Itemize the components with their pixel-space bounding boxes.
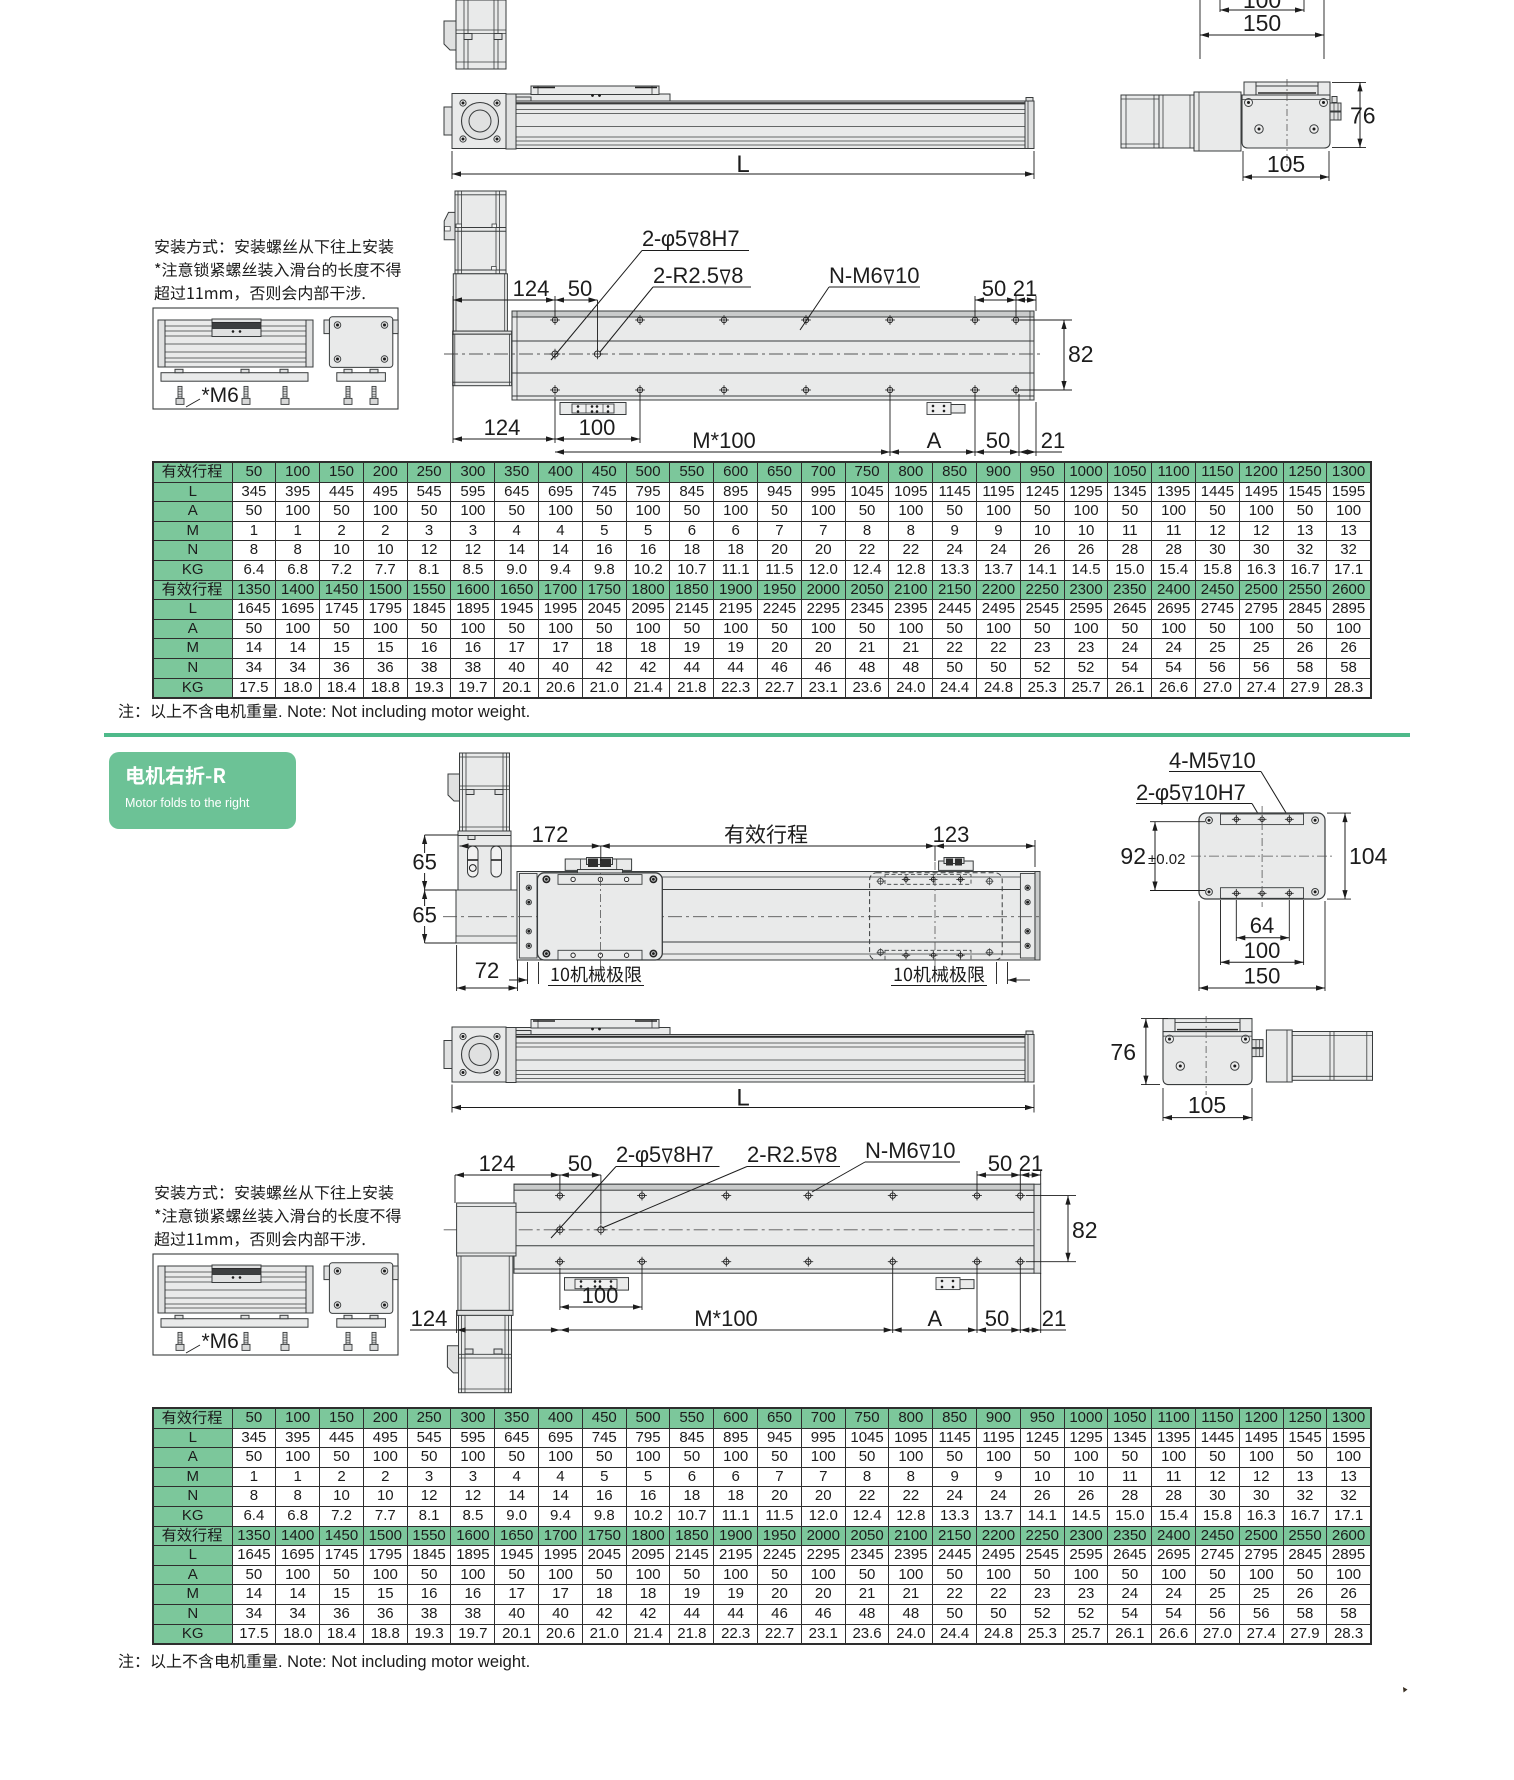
svg-text:124: 124	[479, 1151, 516, 1176]
svg-text:65: 65	[412, 903, 436, 928]
svg-text:105: 105	[1188, 1092, 1226, 1118]
svg-text:50: 50	[568, 276, 592, 301]
svg-text:. Note: Not including motor we: . Note: Not including motor weight.	[278, 1653, 530, 1671]
svg-text:50: 50	[986, 428, 1010, 453]
svg-text:82: 82	[1068, 341, 1094, 367]
svg-text:M*100: M*100	[692, 428, 756, 453]
svg-text:*M6: *M6	[202, 384, 239, 407]
svg-text:92: 92	[1120, 843, 1146, 869]
svg-text:50: 50	[568, 1151, 592, 1176]
svg-text:123: 123	[933, 822, 970, 847]
svg-text:100: 100	[579, 415, 616, 440]
svg-text:21: 21	[1019, 1151, 1043, 1176]
svg-text:8: 8	[825, 1142, 837, 1167]
svg-text:82: 82	[1072, 1217, 1098, 1243]
svg-text:4-M5: 4-M5	[1169, 748, 1219, 773]
svg-text:10: 10	[895, 263, 920, 288]
svg-text:100: 100	[1244, 938, 1281, 963]
svg-text:8H7: 8H7	[673, 1142, 713, 1167]
svg-text:104: 104	[1349, 843, 1388, 869]
svg-text:10H7: 10H7	[1193, 780, 1246, 805]
svg-text:150: 150	[1243, 10, 1281, 36]
svg-text:50: 50	[982, 276, 1006, 301]
svg-text:64: 64	[1250, 913, 1274, 938]
svg-text:124: 124	[411, 1306, 448, 1331]
svg-text:. Note: Not including motor we: . Note: Not including motor weight.	[278, 703, 530, 721]
svg-text:8: 8	[731, 263, 743, 288]
svg-text:124: 124	[484, 415, 521, 440]
svg-text:50: 50	[985, 1306, 1009, 1331]
svg-text:2-φ5: 2-φ5	[616, 1142, 661, 1167]
svg-text:M*100: M*100	[694, 1306, 758, 1331]
svg-text:8H7: 8H7	[699, 226, 739, 251]
svg-text:2-R2.5: 2-R2.5	[747, 1142, 813, 1167]
svg-text:100: 100	[1243, 0, 1281, 13]
svg-text:2-φ5: 2-φ5	[1136, 780, 1181, 805]
svg-text:72: 72	[475, 958, 499, 983]
svg-text:L: L	[736, 151, 749, 178]
svg-text:A: A	[927, 428, 942, 453]
svg-text:172: 172	[532, 822, 569, 847]
svg-text:*M6: *M6	[202, 1330, 239, 1353]
svg-text:76: 76	[1350, 103, 1376, 129]
svg-text:±0.02: ±0.02	[1148, 851, 1185, 868]
svg-text:N-M6: N-M6	[829, 263, 883, 288]
svg-text:A: A	[927, 1306, 942, 1331]
svg-text:124: 124	[513, 276, 550, 301]
svg-text:50: 50	[988, 1151, 1012, 1176]
svg-text:2-φ5: 2-φ5	[642, 226, 687, 251]
svg-text:100: 100	[582, 1283, 619, 1308]
svg-text:10: 10	[931, 1138, 956, 1163]
svg-text:150: 150	[1244, 964, 1281, 989]
svg-text:N-M6: N-M6	[865, 1138, 919, 1163]
svg-text:L: L	[736, 1085, 749, 1112]
svg-text:21: 21	[1013, 276, 1037, 301]
svg-text:76: 76	[1110, 1039, 1136, 1065]
svg-text:21: 21	[1041, 428, 1065, 453]
svg-text:65: 65	[412, 850, 436, 875]
svg-text:21: 21	[1042, 1306, 1066, 1331]
svg-text:2-R2.5: 2-R2.5	[653, 263, 719, 288]
svg-text:10: 10	[1231, 748, 1256, 773]
svg-text:105: 105	[1267, 151, 1305, 177]
